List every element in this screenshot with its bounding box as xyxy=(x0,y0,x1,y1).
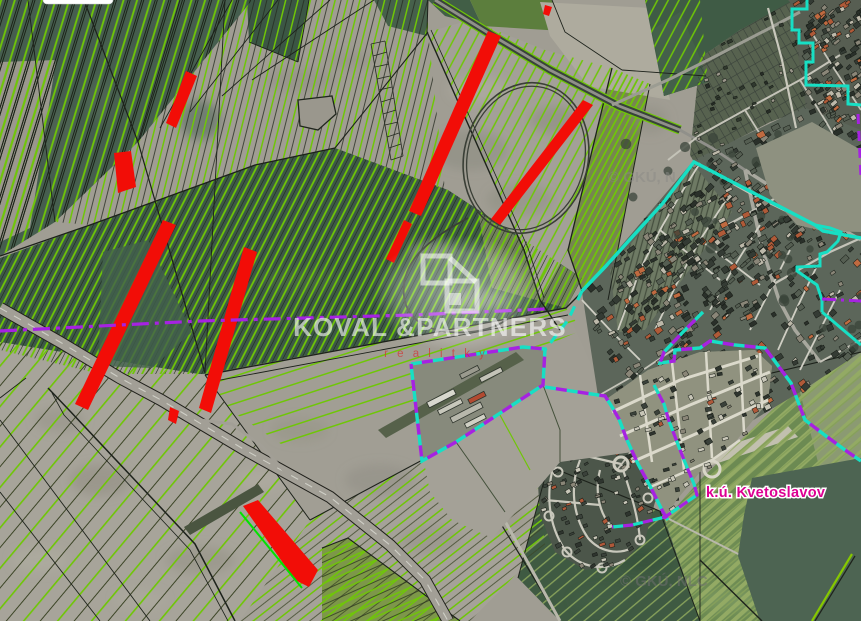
svg-text:k.ú. Kvetoslavov: k.ú. Kvetoslavov xyxy=(706,485,825,501)
svg-text:© GKÚ, NLC: © GKÚ, NLC xyxy=(620,572,708,590)
svg-text:© GKÚ, N: © GKÚ, N xyxy=(608,168,676,186)
svg-text:KOVAL &PARTNERS: KOVAL &PARTNERS xyxy=(293,312,567,342)
svg-text:r e a l i t k y: r e a l i t k y xyxy=(384,348,488,360)
